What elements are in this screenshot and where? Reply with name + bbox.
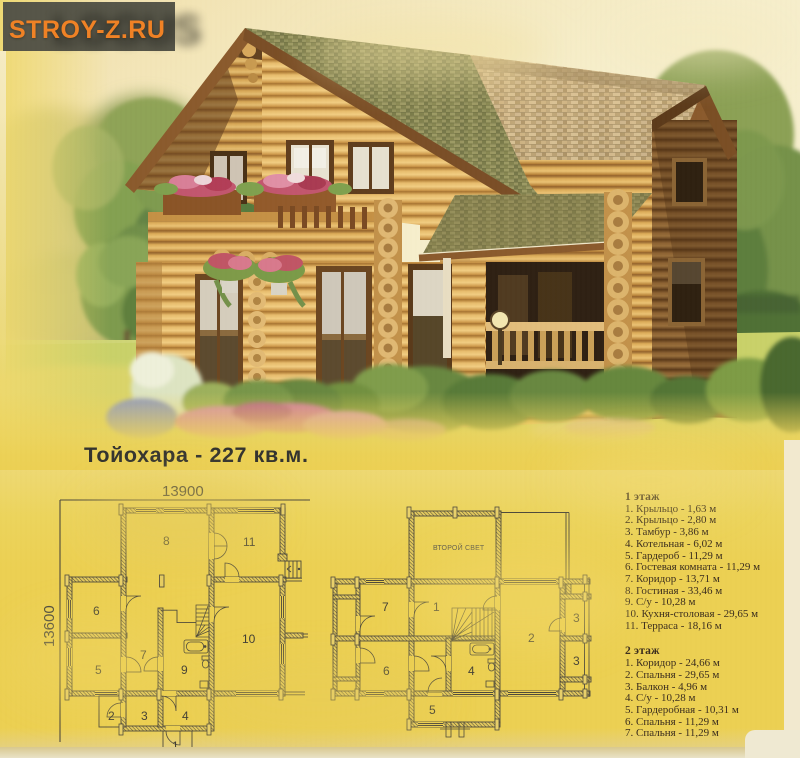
svg-text:2: 2 xyxy=(108,709,115,723)
svg-text:7: 7 xyxy=(140,648,147,662)
svg-text:9: 9 xyxy=(181,663,188,677)
svg-text:6: 6 xyxy=(93,604,100,618)
svg-text:1: 1 xyxy=(433,600,440,614)
svg-text:3: 3 xyxy=(573,654,580,668)
svg-text:5: 5 xyxy=(95,663,102,677)
svg-text:11: 11 xyxy=(243,535,256,549)
svg-text:10: 10 xyxy=(242,632,256,646)
svg-text:7: 7 xyxy=(382,600,389,614)
svg-text:13900: 13900 xyxy=(162,483,204,500)
svg-text:3: 3 xyxy=(141,709,148,723)
svg-text:ВТОРОЙ СВЕТ: ВТОРОЙ СВЕТ xyxy=(433,543,485,552)
svg-text:13600: 13600 xyxy=(41,605,58,647)
svg-text:5: 5 xyxy=(429,703,436,717)
svg-text:2: 2 xyxy=(528,631,535,645)
svg-text:8: 8 xyxy=(163,534,170,548)
svg-text:4: 4 xyxy=(182,709,189,723)
svg-text:4: 4 xyxy=(468,664,475,678)
svg-text:6: 6 xyxy=(383,664,390,678)
svg-text:3: 3 xyxy=(573,611,580,625)
